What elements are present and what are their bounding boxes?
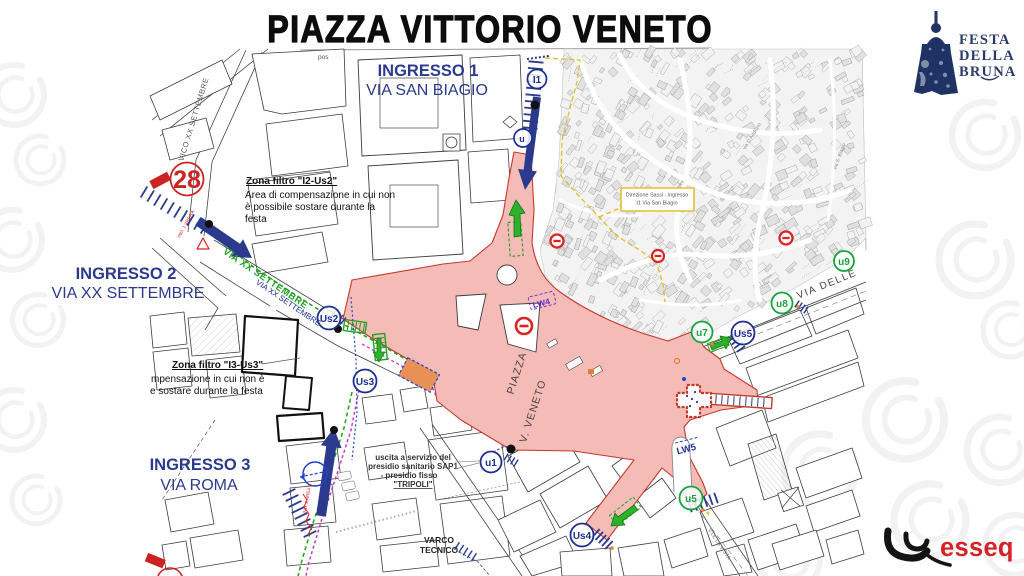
svg-text:presidio sanitario SAP1: presidio sanitario SAP1 (368, 462, 458, 471)
svg-text:I1: I1 (533, 75, 542, 86)
svg-text:u8: u8 (776, 299, 788, 310)
svg-text:Zona filtro "I3-Us3": Zona filtro "I3-Us3" (172, 360, 263, 371)
svg-text:VIA SAN BIAGIO: VIA SAN BIAGIO (366, 82, 488, 99)
svg-text:u5: u5 (685, 494, 697, 505)
svg-text:VIA XX SETTEMBRE: VIA XX SETTEMBRE (52, 285, 205, 302)
svg-text:pos: pos (318, 54, 329, 61)
svg-text:INGRESSO 3: INGRESSO 3 (150, 456, 251, 474)
svg-text:VIA ROMA: VIA ROMA (160, 477, 238, 494)
svg-text:e sostare durante la festa: e sostare durante la festa (150, 386, 263, 397)
svg-text:esseq: esseq (940, 534, 1014, 562)
svg-text:u9: u9 (838, 257, 850, 268)
svg-text:INGRESSO 2: INGRESSO 2 (76, 265, 177, 283)
svg-text:- presidio fisso: - presidio fisso (381, 471, 438, 480)
svg-text:Area di compensazione in cui n: Area di compensazione in cui non (245, 190, 395, 201)
svg-text:28: 28 (173, 166, 201, 194)
svg-text:Us4: Us4 (573, 531, 592, 542)
svg-text:Zona filtro "I2-Us2": Zona filtro "I2-Us2" (246, 176, 337, 187)
svg-text:BRUNA: BRUNA (959, 64, 1017, 80)
svg-text:è possibile sostare durante la: è possibile sostare durante la (245, 202, 376, 213)
svg-text:"TRIPOLI": "TRIPOLI" (393, 480, 432, 489)
svg-text:Us5: Us5 (734, 329, 753, 340)
svg-text:I1 Via San Biagio: I1 Via San Biagio (636, 201, 677, 207)
svg-text:u: u (519, 134, 525, 144)
svg-text:PIAZZA VITTORIO VENETO: PIAZZA VITTORIO VENETO (267, 9, 712, 51)
svg-text:u1: u1 (485, 458, 497, 469)
svg-text:uscita a servizio del: uscita a servizio del (375, 453, 451, 462)
svg-text:u7: u7 (696, 328, 708, 339)
svg-text:VARCO: VARCO (424, 535, 454, 545)
svg-text:festa: festa (245, 214, 267, 225)
svg-text:mpensazione in cui non è: mpensazione in cui non è (151, 374, 265, 385)
svg-text:TECNICO: TECNICO (420, 545, 459, 555)
svg-text:FESTA: FESTA (959, 32, 1011, 48)
svg-text:Direzione Sassi - ingresso: Direzione Sassi - ingresso (626, 193, 689, 199)
svg-text:DELLA: DELLA (959, 48, 1015, 64)
svg-text:Us3: Us3 (356, 377, 375, 388)
svg-text:INGRESSO 1: INGRESSO 1 (378, 62, 479, 80)
